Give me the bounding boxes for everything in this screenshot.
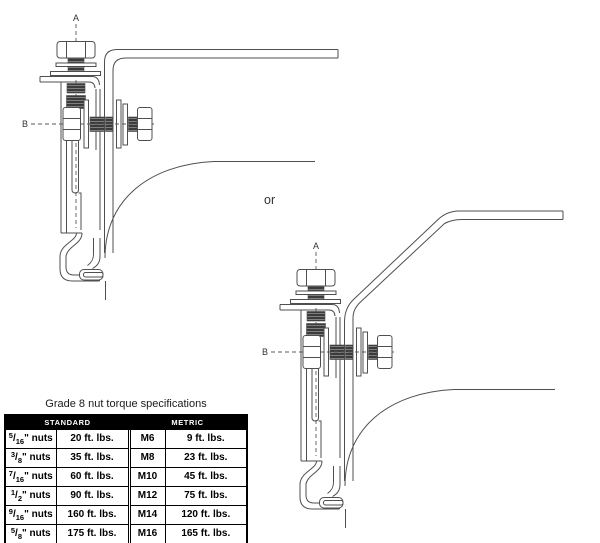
std-size-cell: 1/2" nuts <box>5 487 56 506</box>
table-header-row: STANDARD METRIC <box>5 415 247 430</box>
table-row: 1/2" nuts 90 ft. lbs. M12 75 ft. lbs. <box>5 487 247 506</box>
metric-torque-cell: 9 ft. lbs. <box>165 430 247 449</box>
metric-torque-cell: 75 ft. lbs. <box>165 487 247 506</box>
diagram-2-assembly: A B <box>262 211 563 528</box>
label-b: B <box>262 347 268 357</box>
table-title: Grade 8 nut torque specifications <box>4 398 248 411</box>
diagram-1-assembly: A B <box>22 13 338 300</box>
metric-torque-cell: 23 ft. lbs. <box>165 449 247 468</box>
metric-header: METRIC <box>129 415 247 430</box>
metric-size-cell: M14 <box>129 506 165 525</box>
std-torque-cell: 35 ft. lbs. <box>56 449 129 468</box>
label-a: A <box>313 241 319 251</box>
std-size-cell: 5/8" nuts <box>5 525 56 543</box>
std-size-cell: 3/8" nuts <box>5 449 56 468</box>
std-size-cell: 9/16" nuts <box>5 506 56 525</box>
table-row: 7/16" nuts 60 ft. lbs. M10 45 ft. lbs. <box>5 468 247 487</box>
metric-torque-cell: 165 ft. lbs. <box>165 525 247 543</box>
metric-torque-cell: 120 ft. lbs. <box>165 506 247 525</box>
metric-size-cell: M10 <box>129 468 165 487</box>
label-b: B <box>22 119 28 129</box>
table-row: 5/8" nuts 175 ft. lbs. M16 165 ft. lbs. <box>5 525 247 543</box>
metric-size-cell: M8 <box>129 449 165 468</box>
metric-size-cell: M16 <box>129 525 165 543</box>
torque-spec-table: STANDARD METRIC 5/16" nuts 20 ft. lbs. M… <box>4 414 248 543</box>
table-row: 3/8" nuts 35 ft. lbs. M8 23 ft. lbs. <box>5 449 247 468</box>
std-torque-cell: 60 ft. lbs. <box>56 468 129 487</box>
torque-spec-section: Grade 8 nut torque specifications STANDA… <box>4 398 248 543</box>
metric-torque-cell: 45 ft. lbs. <box>165 468 247 487</box>
table-row: 9/16" nuts 160 ft. lbs. M14 120 ft. lbs. <box>5 506 247 525</box>
std-size-cell: 7/16" nuts <box>5 468 56 487</box>
std-torque-cell: 160 ft. lbs. <box>56 506 129 525</box>
std-torque-cell: 20 ft. lbs. <box>56 430 129 449</box>
or-text: or <box>264 193 275 207</box>
standard-header: STANDARD <box>5 415 129 430</box>
table-row: 5/16" nuts 20 ft. lbs. M6 9 ft. lbs. <box>5 430 247 449</box>
label-a: A <box>73 13 79 23</box>
std-size-cell: 5/16" nuts <box>5 430 56 449</box>
instruction-sheet: A B or A B Grade 8 nut torque specificat… <box>0 0 600 543</box>
metric-size-cell: M12 <box>129 487 165 506</box>
std-torque-cell: 175 ft. lbs. <box>56 525 129 543</box>
tube-wall-outer <box>113 58 338 253</box>
tube-90-degree <box>105 50 339 254</box>
std-torque-cell: 90 ft. lbs. <box>56 487 129 506</box>
metric-size-cell: M6 <box>129 430 165 449</box>
tube-wall-inner <box>105 50 339 254</box>
